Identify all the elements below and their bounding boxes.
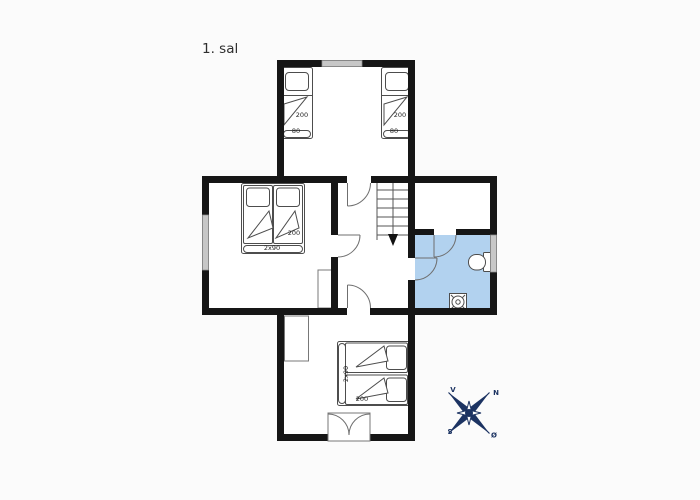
pillow [387,378,407,402]
compass-center [465,409,473,417]
floor-drain-icon [450,294,467,311]
double-entry-door [328,413,370,441]
floor-plan: 200 80 200 80 200 2x90 2x90 200 V N S Ø … [0,0,700,500]
bed-length-label: 200 [356,395,368,403]
bed-length-label: 200 [288,229,300,237]
duct-closet [318,270,332,308]
double-bed [242,184,305,254]
window [203,215,209,270]
pillow [286,73,309,91]
compass-west-label: V [450,386,456,394]
pillow [386,73,409,91]
bed-width-label: 80 [292,127,300,135]
compass-east-label: Ø [491,432,497,440]
pillow [277,188,300,207]
bed-length-label: 200 [296,111,308,119]
page-title: 1. sal [202,41,238,57]
window [491,235,497,272]
pillow [247,188,270,207]
compass-north-label: N [493,389,499,397]
bed-width-label: 80 [390,127,398,135]
bed-length-label: 200 [394,111,406,119]
bed-width-label: 2x90 [264,244,280,252]
pillow [387,346,407,370]
bed-width-label: 2x90 [342,366,350,382]
floor-plan-page: 200 80 200 80 200 2x90 2x90 200 V N S Ø … [0,0,700,500]
compass-south-label: S [447,428,452,436]
window [322,61,362,67]
closet [285,316,309,361]
toilet-icon [469,253,492,272]
